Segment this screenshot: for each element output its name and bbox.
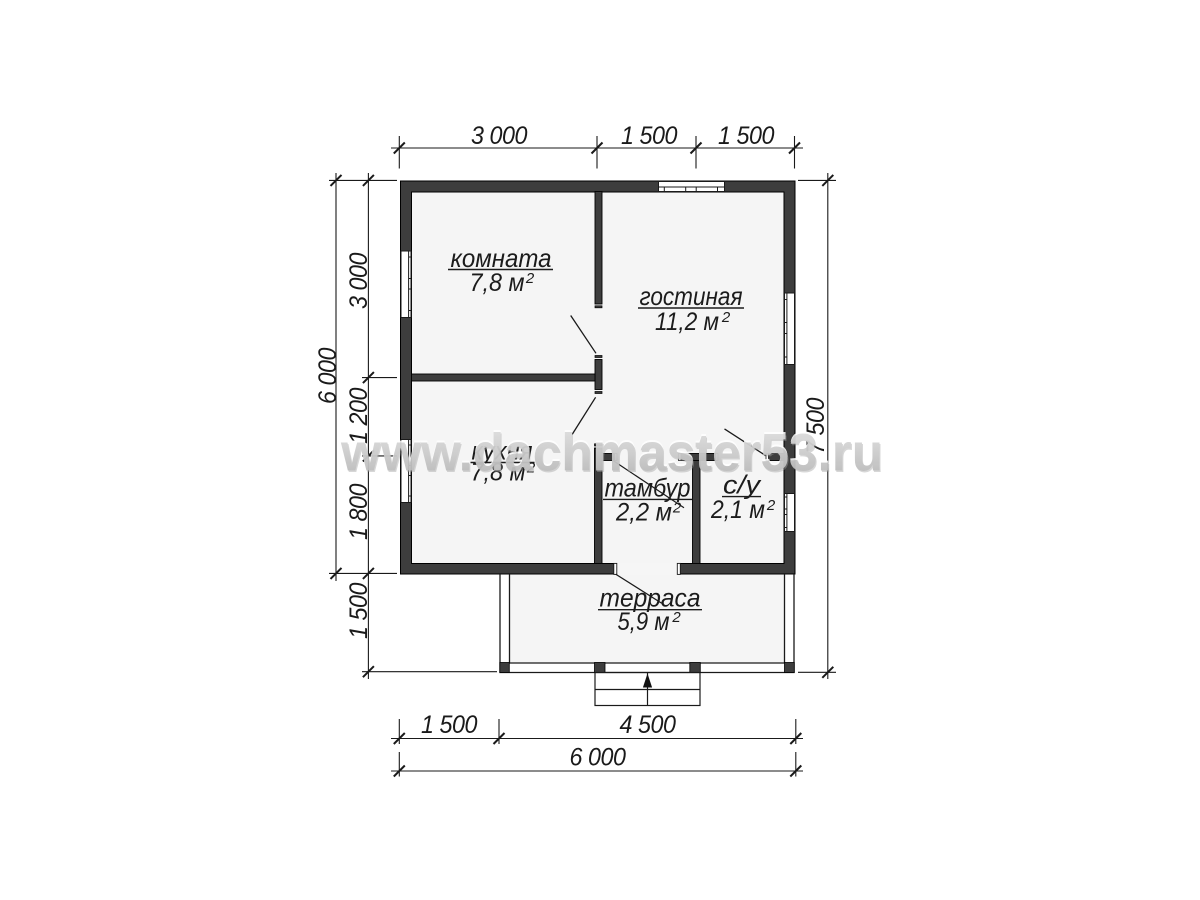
- svg-text:6 000: 6 000: [314, 347, 342, 404]
- svg-text:1 800: 1 800: [345, 483, 373, 540]
- svg-text:2,1 м: 2,1 м: [710, 496, 765, 524]
- svg-text:5,9 м: 5,9 м: [618, 608, 670, 636]
- svg-text:2: 2: [721, 309, 731, 326]
- svg-text:7,8 м: 7,8 м: [470, 269, 525, 297]
- svg-text:1 500: 1 500: [621, 122, 678, 150]
- svg-text:1 500: 1 500: [718, 122, 775, 150]
- svg-text:гостиная: гостиная: [640, 281, 743, 311]
- svg-text:2: 2: [671, 609, 681, 626]
- svg-text:3 000: 3 000: [471, 122, 528, 150]
- svg-text:1 500: 1 500: [421, 711, 478, 739]
- svg-text:3 000: 3 000: [345, 252, 373, 309]
- svg-text:www.dachmaster53.ru: www.dachmaster53.ru: [340, 424, 883, 483]
- svg-text:6 000: 6 000: [570, 744, 627, 772]
- svg-text:2: 2: [525, 270, 535, 287]
- svg-text:1 500: 1 500: [345, 582, 373, 639]
- svg-text:2: 2: [672, 500, 682, 517]
- svg-text:2: 2: [766, 497, 776, 514]
- svg-text:2,2 м: 2,2 м: [615, 499, 672, 527]
- svg-text:4 500: 4 500: [620, 711, 677, 739]
- svg-text:11,2 м: 11,2 м: [655, 308, 719, 336]
